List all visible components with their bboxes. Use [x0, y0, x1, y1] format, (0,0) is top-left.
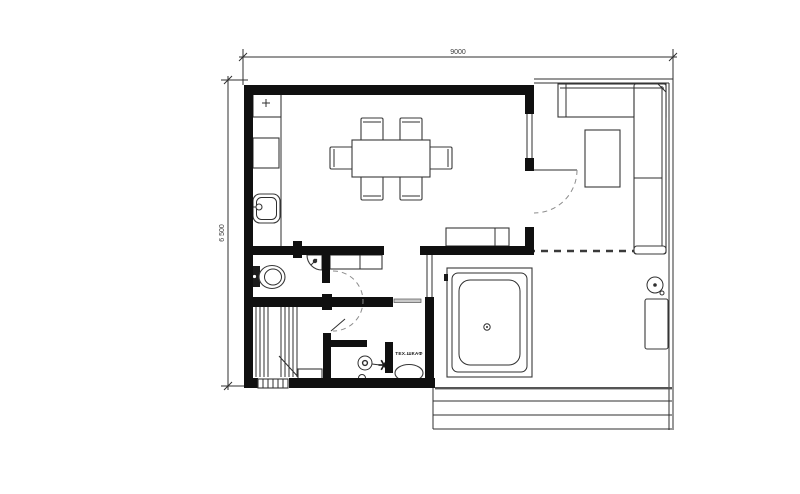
- chair: [330, 147, 354, 169]
- dining-wall-a: [244, 246, 294, 255]
- chair: [361, 118, 383, 142]
- kitchen-appliance: [253, 138, 279, 168]
- wc-corner-sink: [307, 255, 322, 270]
- door-jamb: [322, 294, 332, 310]
- wc-wall: [322, 255, 330, 283]
- exterior-wall-left: [244, 85, 253, 388]
- hot-tub-tap-icon: [444, 274, 448, 281]
- coffee-table: [585, 130, 620, 187]
- terrace-steps: [433, 387, 672, 429]
- terrace-bench: [645, 299, 668, 349]
- wall-right-a: [525, 85, 534, 114]
- floor-plan-canvas: 9000 6 500: [0, 0, 800, 494]
- chair: [400, 176, 422, 200]
- shower: [358, 356, 390, 382]
- faucet-icon: [256, 204, 262, 210]
- door-jamb: [293, 241, 302, 258]
- hallway-cabinet: [330, 255, 382, 269]
- window-living: [527, 114, 532, 158]
- exterior-wall-bottom-b: [289, 378, 435, 388]
- hot-tub: [444, 268, 532, 377]
- exterior-wall-bottom-a: [244, 378, 258, 388]
- chair: [361, 176, 383, 200]
- chair: [428, 147, 452, 169]
- tech-cabinet-label: ТЕХ.ШКАФ: [395, 351, 422, 357]
- wall-right-b: [525, 158, 534, 171]
- dimension-top: 9000: [239, 49, 677, 85]
- dimension-height-label: 6 500: [219, 224, 226, 242]
- door-swing-arc: [534, 170, 577, 213]
- bath-wall-right: [425, 297, 434, 388]
- floor-plan-drawing: 9000 6 500: [0, 0, 800, 494]
- dining-sideboard: [446, 228, 509, 246]
- dining-wall-c: [420, 246, 534, 255]
- shower-door: [394, 299, 421, 303]
- dimension-left: 6 500: [219, 76, 248, 390]
- tech-stub-wall: [385, 342, 393, 373]
- dining-table: [352, 140, 430, 177]
- exterior-wall-top: [244, 85, 534, 95]
- terrace-door: [534, 170, 577, 213]
- shower-wall: [323, 340, 367, 347]
- tech-cabinet: ТЕХ.ШКАФ: [395, 351, 423, 382]
- window-hall: [427, 255, 432, 297]
- chair: [400, 118, 422, 142]
- outdoor-shower: [647, 277, 664, 295]
- window-sauna: [258, 379, 288, 388]
- dimension-width-label: 9000: [450, 49, 466, 56]
- sauna-wall: [323, 333, 331, 378]
- dining-wall-b: [302, 246, 384, 255]
- door-leaf-closed: [394, 299, 421, 303]
- wc-toilet: [249, 266, 285, 289]
- sauna-benches: [256, 307, 300, 379]
- middle-wall: [244, 297, 393, 307]
